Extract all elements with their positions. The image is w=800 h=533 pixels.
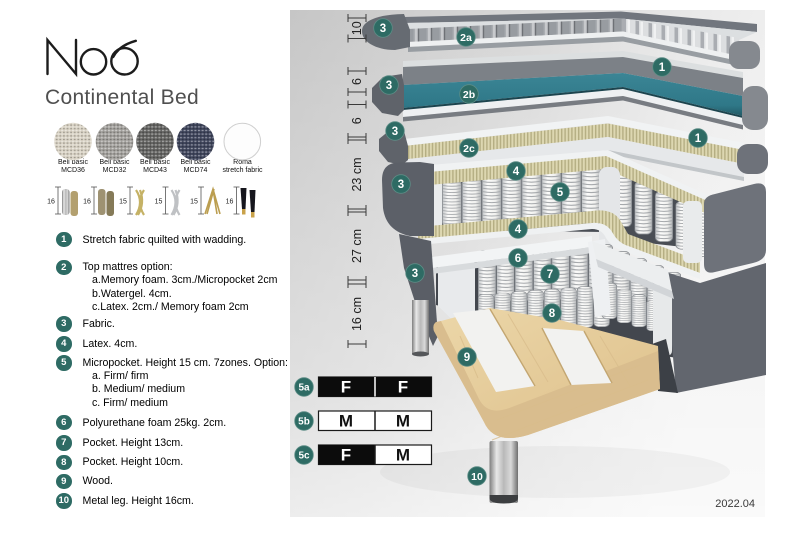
svg-text:3: 3 xyxy=(380,23,386,35)
svg-text:8: 8 xyxy=(549,308,556,320)
svg-text:2b: 2b xyxy=(463,89,475,101)
svg-text:4: 4 xyxy=(513,166,520,178)
svg-text:6: 6 xyxy=(350,117,364,124)
svg-text:15: 15 xyxy=(190,199,198,206)
svg-text:16: 16 xyxy=(47,199,55,206)
svg-text:5: 5 xyxy=(557,187,564,199)
svg-text:16 cm: 16 cm xyxy=(350,297,364,331)
svg-text:F: F xyxy=(341,446,351,465)
svg-text:2c: 2c xyxy=(463,143,475,155)
svg-text:5a: 5a xyxy=(298,383,310,394)
svg-text:9: 9 xyxy=(464,352,470,364)
svg-text:F: F xyxy=(341,378,351,397)
svg-text:27 cm: 27 cm xyxy=(350,229,364,263)
svg-text:10: 10 xyxy=(350,21,364,35)
svg-text:16: 16 xyxy=(226,199,234,206)
svg-text:16: 16 xyxy=(83,199,91,206)
svg-text:15: 15 xyxy=(155,199,163,206)
svg-text:6: 6 xyxy=(515,253,521,265)
svg-text:2022.04: 2022.04 xyxy=(715,498,755,510)
svg-text:5c: 5c xyxy=(298,451,310,462)
svg-text:3: 3 xyxy=(386,80,392,92)
svg-text:F: F xyxy=(398,378,408,397)
svg-text:6: 6 xyxy=(350,78,364,85)
svg-text:3: 3 xyxy=(412,268,418,280)
svg-text:3: 3 xyxy=(398,179,404,191)
svg-text:M: M xyxy=(339,412,353,431)
svg-text:7: 7 xyxy=(547,269,553,281)
svg-text:M: M xyxy=(396,412,410,431)
svg-text:4: 4 xyxy=(515,224,522,236)
svg-text:M: M xyxy=(396,446,410,465)
svg-text:1: 1 xyxy=(695,133,702,145)
svg-text:5b: 5b xyxy=(298,417,310,428)
svg-text:1: 1 xyxy=(659,62,666,74)
svg-text:2a: 2a xyxy=(460,32,472,44)
svg-text:3: 3 xyxy=(392,126,398,138)
svg-text:10: 10 xyxy=(471,471,483,483)
svg-text:23 cm: 23 cm xyxy=(350,157,364,191)
svg-text:15: 15 xyxy=(119,199,127,206)
